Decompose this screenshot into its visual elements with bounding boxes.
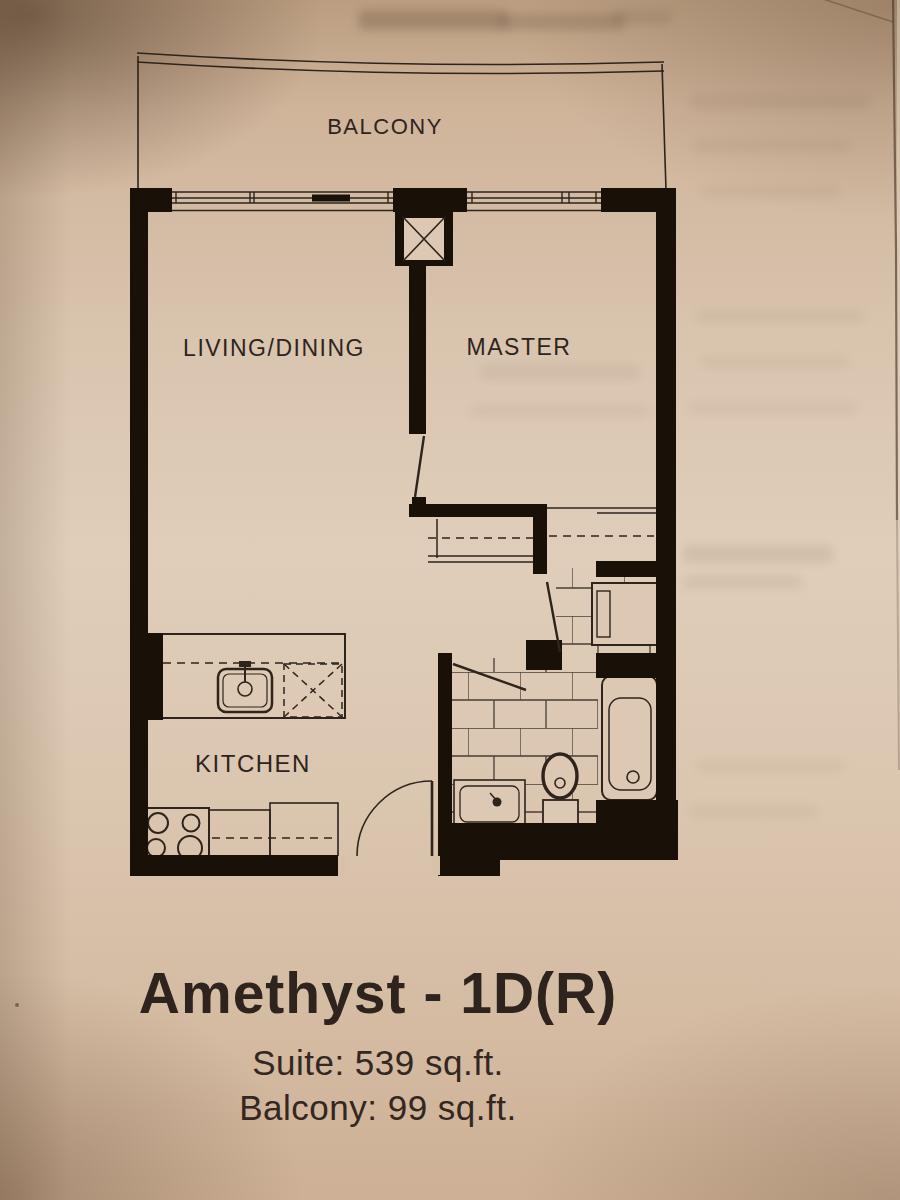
entry-door-jamb xyxy=(338,856,348,875)
closet-right xyxy=(547,508,658,536)
master-label: MASTER xyxy=(467,334,572,360)
sliding-door-panel xyxy=(312,195,350,202)
plan-name: Amethyst - 1D(R) xyxy=(0,960,756,1026)
living-dining-label: LIVING/DINING xyxy=(183,335,365,361)
balcony-area: Balcony: 99 sq.ft. xyxy=(0,1085,756,1130)
toilet xyxy=(543,754,578,825)
kitchen-counter-island xyxy=(160,634,345,718)
washer-dryer xyxy=(592,583,657,645)
floor-plan-photo: BALCONY LIVING/DINING MASTER KITCHEN Ame… xyxy=(0,0,900,1200)
entry-door-jamb xyxy=(433,856,440,875)
kitchen-sink xyxy=(218,661,272,712)
structural-column xyxy=(403,217,445,261)
bathtub xyxy=(602,676,657,800)
kitchen-label: KITCHEN xyxy=(195,750,311,777)
closet-left xyxy=(428,519,533,562)
title-block: Amethyst - 1D(R) Suite: 539 sq.ft. Balco… xyxy=(0,960,756,1130)
kitchen-base-cabinets xyxy=(209,803,338,864)
suite-area: Suite: 539 sq.ft. xyxy=(0,1040,756,1085)
entry-door xyxy=(357,781,432,856)
page-edge-lines xyxy=(820,0,899,770)
vanity-sink xyxy=(454,780,525,828)
master-window xyxy=(467,192,601,203)
master-door xyxy=(415,436,424,497)
living-window xyxy=(172,192,393,203)
dishwasher xyxy=(284,664,342,717)
balcony-label: BALCONY xyxy=(327,114,443,139)
